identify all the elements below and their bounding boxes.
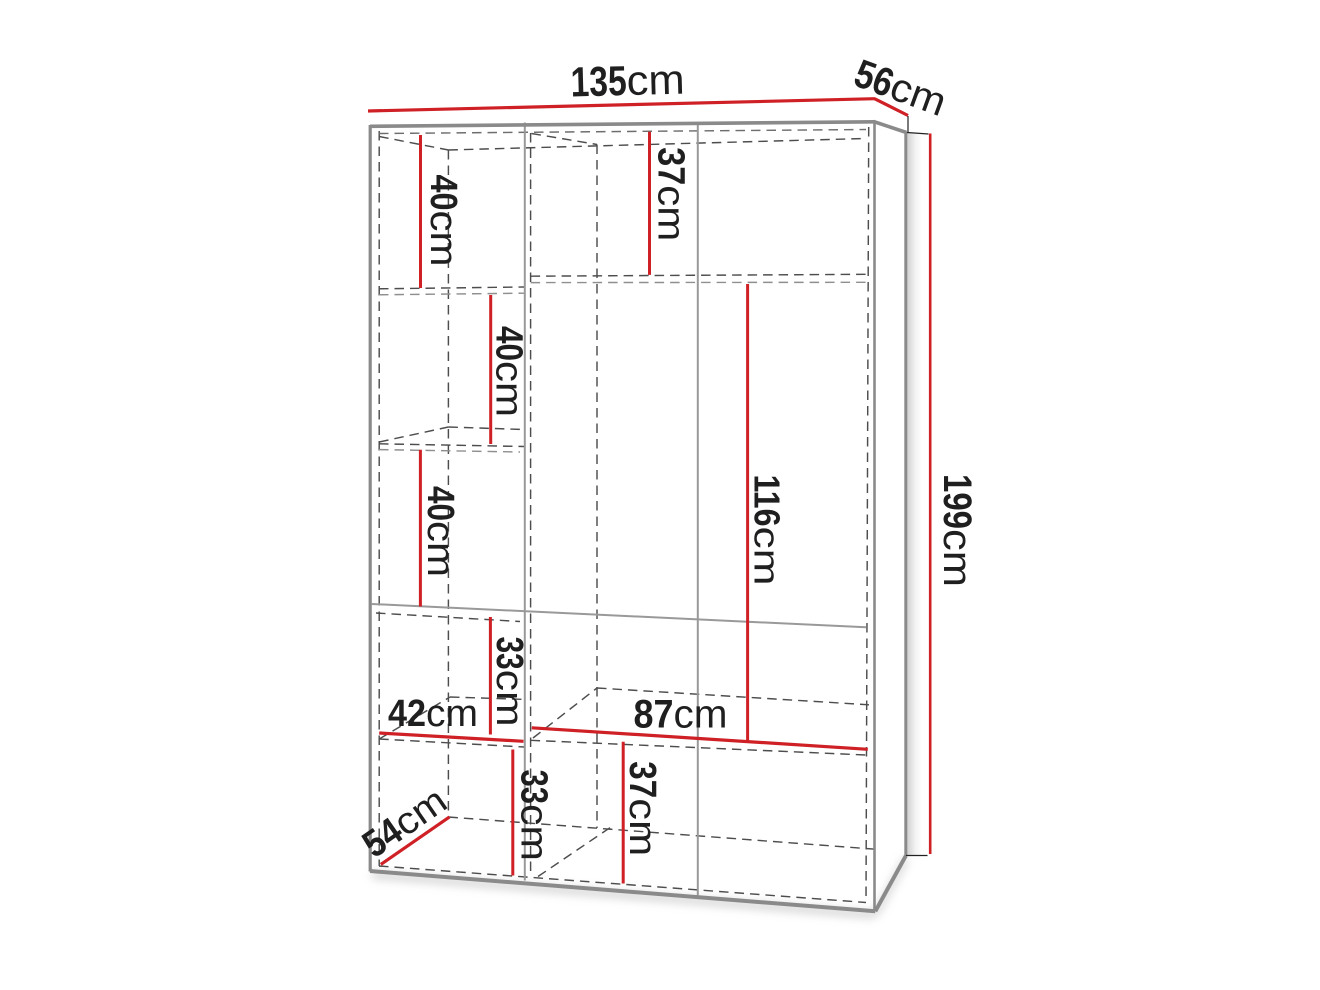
svg-text:33cm: 33cm	[513, 770, 555, 862]
svg-text:37cm: 37cm	[649, 147, 691, 241]
svg-text:40cm: 40cm	[487, 326, 529, 417]
svg-text:135cm: 135cm	[570, 56, 685, 106]
svg-text:56cm: 56cm	[849, 52, 952, 125]
svg-text:199cm: 199cm	[935, 474, 979, 587]
svg-text:42cm: 42cm	[388, 693, 478, 735]
svg-text:87cm: 87cm	[634, 693, 728, 737]
svg-text:33cm: 33cm	[488, 637, 530, 727]
svg-text:116cm: 116cm	[747, 475, 788, 586]
svg-text:40cm: 40cm	[422, 175, 464, 267]
svg-text:40cm: 40cm	[419, 486, 461, 577]
svg-text:37cm: 37cm	[621, 761, 663, 856]
